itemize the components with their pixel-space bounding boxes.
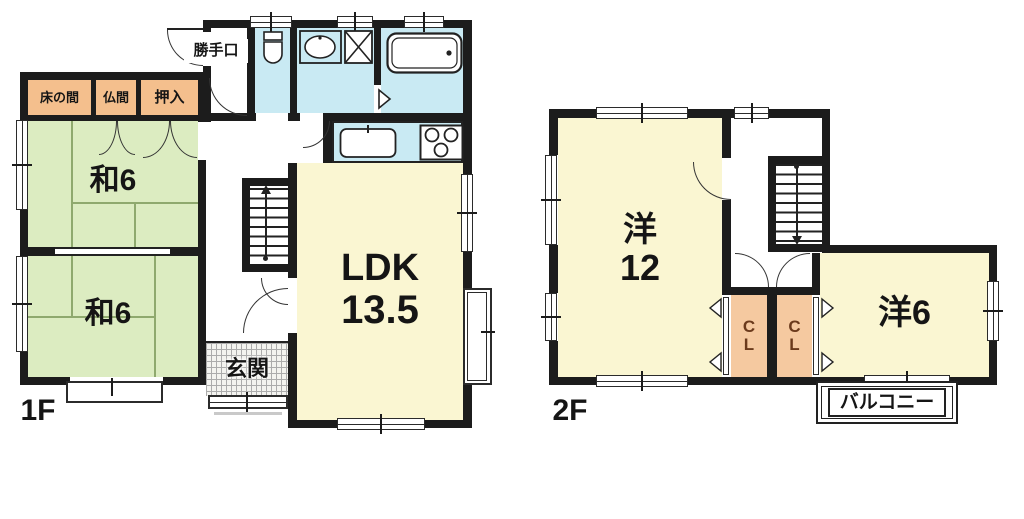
closet-door-left: [723, 297, 729, 375]
wall: [822, 109, 830, 253]
label-closet1-c: C: [743, 318, 755, 336]
bifold-indicator: [708, 352, 722, 372]
stair-down-arrow: [792, 236, 802, 245]
staircase-2f: [776, 164, 822, 244]
stair-arrow-dot: [794, 164, 799, 169]
label-floor2: 2F: [546, 392, 594, 430]
bifold-indicator: [821, 352, 835, 372]
door-arc-vestibule-right: [776, 253, 810, 287]
label-closet2-c: C: [788, 318, 800, 336]
wall: [722, 287, 820, 295]
window-tick: [641, 371, 643, 391]
wall: [767, 295, 777, 377]
window-tick: [641, 103, 643, 123]
wall: [768, 156, 822, 164]
label-yoshitsu12-num: 12: [620, 249, 660, 287]
label-closet1-l: L: [744, 336, 754, 354]
label-balcony: バルコニー: [828, 388, 946, 417]
floorplan-2f: バルコニー 洋 12 洋6 C L C L 2F: [0, 0, 1024, 519]
label-yoshitsu12: 洋 12: [558, 198, 722, 302]
stair-arrow-line: [796, 168, 798, 236]
floorplan-canvas: 勝手口 床の間 仏間 押入 和6 和6 LDK 13.5 玄関 1F: [0, 0, 1024, 519]
wall: [549, 245, 558, 293]
wall: [768, 109, 830, 118]
wall: [687, 377, 830, 385]
label-closet2-l: L: [789, 336, 799, 354]
window-tick: [751, 103, 753, 123]
wall: [549, 377, 597, 385]
wall: [687, 109, 735, 118]
label-closet-2: C L: [777, 301, 812, 371]
wall: [768, 244, 830, 252]
label-yoshitsu12-kanji: 洋: [623, 213, 657, 249]
wall: [549, 109, 558, 155]
wall: [822, 245, 997, 253]
wall: [768, 156, 776, 252]
closet-door-right: [813, 297, 819, 375]
label-closet-1: C L: [731, 301, 767, 371]
wall: [722, 200, 731, 295]
door-arc-vestibule-left: [735, 253, 769, 287]
label-yoshitsu6: 洋6: [820, 288, 989, 340]
window-tick: [541, 316, 561, 318]
wall: [989, 253, 997, 281]
wall: [812, 253, 820, 295]
wall: [722, 118, 731, 158]
